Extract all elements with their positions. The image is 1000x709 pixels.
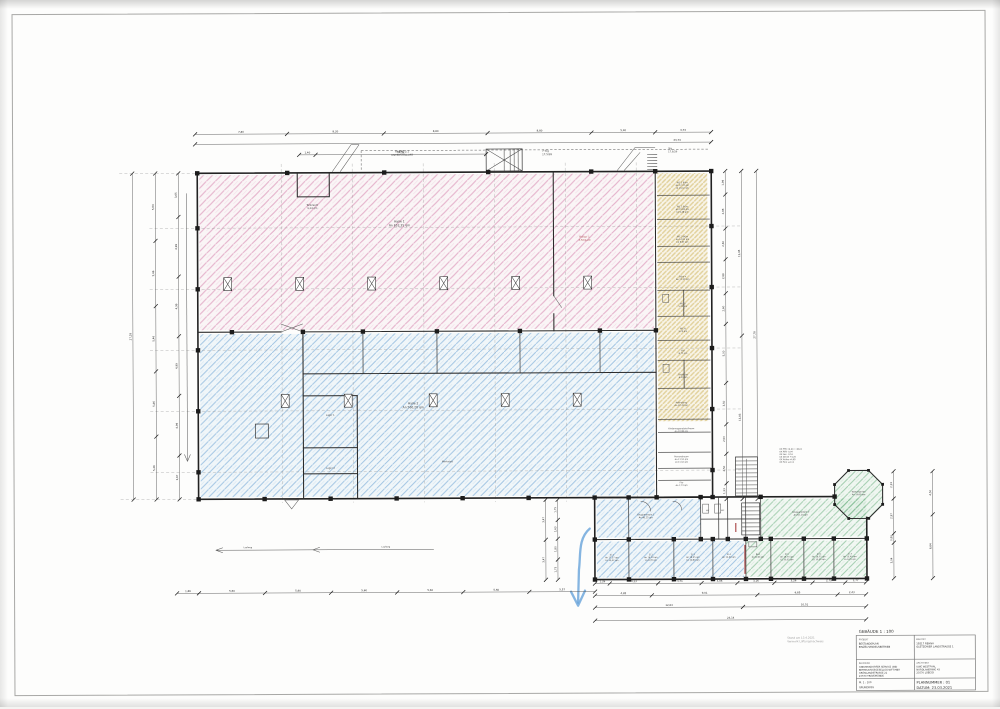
stair-wing (742, 503, 760, 535)
svg-text:WintergartenAn 14,60 qm: WintergartenAn 14,60 qm (852, 490, 866, 496)
svg-text:4,99: 4,99 (174, 244, 178, 250)
svg-text:5,46: 5,46 (152, 401, 156, 407)
svg-text:WC 1 BüroAn 17,37 qmLü 10,42 q: WC 1 BüroAn 17,37 qmLü 10,42 qm (676, 181, 689, 190)
massstab-value: M. 1 : 100 (859, 680, 872, 684)
svg-text:3,67: 3,67 (175, 474, 179, 480)
svg-text:2,60: 2,60 (721, 305, 725, 311)
svg-text:9,01: 9,01 (702, 591, 708, 595)
svg-text:13,95: 13,95 (737, 249, 741, 257)
bauort-value: 19217 REHNAGLETZOWER LANDSTRASSE 1 (916, 641, 954, 648)
stair-top-center (486, 149, 522, 171)
svg-text:5,46: 5,46 (151, 270, 155, 276)
svg-text:WC 2 BüroAn 15,80 qmLü 9,48 qm: WC 2 BüroAn 15,80 qmLü 9,48 qm (676, 205, 689, 214)
svg-text:2,79: 2,79 (826, 578, 832, 582)
svg-text:2,97: 2,97 (889, 513, 893, 519)
svg-text:Lager 1: Lager 1 (326, 414, 335, 417)
svg-text:WC: WC (706, 510, 710, 512)
svg-text:0,80: 0,80 (889, 535, 893, 541)
svg-text:4,99: 4,99 (174, 303, 178, 309)
svg-text:Gruppenraum 2An 52,10 qm: Gruppenraum 2An 52,10 qm (792, 511, 810, 517)
svg-text:Gruppenraum 1An 46,25 qm: Gruppenraum 1An 46,25 qm (637, 513, 655, 519)
bauherr-label: BAUHERR (859, 662, 871, 665)
svg-text:5,60: 5,60 (295, 589, 301, 593)
svg-text:23,14: 23,14 (727, 616, 735, 620)
svg-text:5,57: 5,57 (559, 587, 565, 591)
svg-text:2,60: 2,60 (721, 241, 725, 247)
svg-text:3,50: 3,50 (722, 400, 726, 406)
svg-text:13,83: 13,83 (738, 413, 742, 421)
svg-text:Rolltor 13,50/4,20: Rolltor 13,50/4,20 (578, 235, 590, 242)
svg-text:1,63: 1,63 (553, 526, 557, 532)
svg-text:2,50: 2,50 (722, 465, 726, 471)
svg-text:WC 3 BüroAn 14,92 qmLü 8,95 qm: WC 3 BüroAn 14,92 qmLü 8,95 qm (676, 235, 689, 244)
zone-hall1-pink (199, 173, 654, 330)
svg-text:5,60: 5,60 (427, 588, 433, 592)
svg-text:2,88: 2,88 (721, 208, 725, 214)
svg-text:AnbindungAn 12,45 qm: AnbindungAn 12,45 qm (675, 401, 688, 407)
svg-text:2,50: 2,50 (722, 436, 726, 442)
architekt-label: ARCHITEKT (916, 662, 929, 665)
svg-text:27,78: 27,78 (752, 331, 756, 339)
svg-text:Laufweg: Laufweg (243, 547, 252, 549)
zone-hall2-blue (200, 332, 655, 497)
svg-text:Lager 2: Lager 2 (326, 467, 335, 470)
projekt-value: BESTANDSPLANEINZELHANDELSBETRIEB (859, 641, 891, 648)
title-block: GEBÄUDE 1 : 100 PROJEKT BESTANDSPLANEINZ… (856, 628, 975, 690)
svg-text:Stg17,8/26: Stg17,8/26 (668, 147, 678, 153)
svg-text:1,77: 1,77 (853, 578, 859, 582)
plantyp-value: GRUNDRISS (859, 685, 874, 689)
svg-text:1,75: 1,75 (553, 566, 557, 572)
svg-text:WC: WC (721, 510, 725, 512)
svg-text:8,80: 8,80 (433, 129, 439, 133)
svg-text:FlurAn 7,73 qm: FlurAn 7,73 qm (676, 481, 688, 487)
svg-text:2,43: 2,43 (849, 590, 855, 594)
svg-text:5,60: 5,60 (229, 589, 235, 593)
svg-text:5,60: 5,60 (361, 588, 367, 592)
svg-text:5,00: 5,00 (721, 350, 725, 356)
svg-text:4,74: 4,74 (680, 128, 686, 132)
hand-drawn-blue-arrow (571, 529, 590, 606)
architekt-value: UWE WESTPHALNORDLANDRING 4323570 LÜBECK (916, 665, 940, 674)
svg-text:3,47: 3,47 (541, 557, 545, 563)
svg-text:6,64: 6,64 (928, 543, 932, 549)
svg-text:1,40: 1,40 (304, 151, 310, 155)
svg-text:3,47: 3,47 (541, 517, 545, 523)
svg-text:8,20: 8,20 (333, 129, 339, 133)
svg-text:10,51: 10,51 (801, 602, 809, 606)
svg-text:7,80: 7,80 (238, 130, 244, 134)
svg-text:5,26: 5,26 (152, 465, 156, 471)
datum-value: DATUM: 23.03.2021 (916, 686, 952, 690)
svg-text:2,88: 2,88 (721, 273, 725, 279)
svg-text:PersonalraumAn 11,52 qmLü 11,5: PersonalraumAn 11,52 qmLü 11,52 qm (674, 455, 688, 464)
svg-text:27,28: 27,28 (128, 333, 132, 341)
svg-text:12,63: 12,63 (665, 603, 673, 607)
svg-text:Teeküche6,40 qm: Teeküche6,40 qm (678, 374, 688, 379)
svg-text:1,99: 1,99 (721, 180, 725, 186)
svg-text:Tankraum9,34 qm: Tankraum9,34 qm (306, 204, 318, 210)
svg-text:3,65: 3,65 (174, 192, 178, 198)
projekt-label: PROJEKT (859, 638, 869, 641)
svg-text:5,40: 5,40 (620, 128, 626, 132)
svg-text:4,99: 4,99 (175, 363, 179, 369)
bauort-label: BAUORT (916, 638, 926, 641)
svg-text:1,75: 1,75 (553, 507, 557, 513)
svg-text:3,16: 3,16 (753, 579, 759, 583)
svg-text:Laufweg: Laufweg (381, 546, 390, 548)
stair-mid-right (735, 457, 757, 496)
svg-text:5,64: 5,64 (151, 204, 155, 210)
svg-text:3,04: 3,04 (889, 557, 893, 563)
scanned-plan-page: 7,808,208,808,805,404,74 43,74 1,4014,52… (0, 0, 1000, 707)
svg-text:3,26: 3,26 (791, 578, 797, 582)
revision-stamp-note: Stand am 13.4.2021Vermerk Lüftungsnachwe… (787, 636, 824, 644)
titleblock-scale-heading: GEBÄUDE 1 : 100 (859, 629, 894, 634)
svg-text:4,99: 4,99 (175, 422, 179, 428)
ramp-top-right (617, 147, 657, 170)
svg-text:3,71: 3,71 (677, 579, 683, 583)
svg-text:8,80: 8,80 (537, 129, 543, 133)
svg-text:4,85: 4,85 (621, 591, 627, 595)
drawing-sheet: 7,808,208,808,805,404,74 43,74 1,4014,52… (0, 0, 1000, 709)
bauherr-value: GNEVERSDORFER SERVICE UNDBETREUUNGSGESEL… (859, 666, 900, 678)
floor-plan-canvas: 7,808,208,808,805,404,74 43,74 1,4014,52… (0, 0, 1000, 709)
svg-text:1,86: 1,86 (185, 589, 191, 593)
svg-text:OK FFB ±0,00 = 48,01OK RFB -0: OK FFB ±0,00 = 48,01OK RFB -0,04OK Gel. … (779, 449, 802, 464)
svg-text:5,60: 5,60 (493, 588, 499, 592)
svg-text:1,26: 1,26 (599, 579, 605, 583)
svg-text:4,50: 4,50 (928, 489, 932, 495)
svg-text:5,46: 5,46 (151, 336, 155, 342)
svg-text:1,33: 1,33 (722, 488, 726, 494)
svg-text:4,13: 4,13 (631, 579, 637, 583)
svg-text:6,85: 6,85 (795, 590, 801, 594)
svg-text:43,74: 43,74 (673, 138, 681, 142)
plannummer-value: PLANNUMMER : 01 (916, 681, 950, 685)
svg-text:RAMPE 2:1UNTERSTELLORT: RAMPE 2:1UNTERSTELLORT (391, 149, 413, 156)
svg-text:2,33: 2,33 (889, 482, 893, 488)
svg-text:3,06: 3,06 (717, 579, 723, 583)
svg-text:Werkstatt: Werkstatt (442, 460, 453, 463)
svg-text:1,80: 1,80 (553, 546, 557, 552)
